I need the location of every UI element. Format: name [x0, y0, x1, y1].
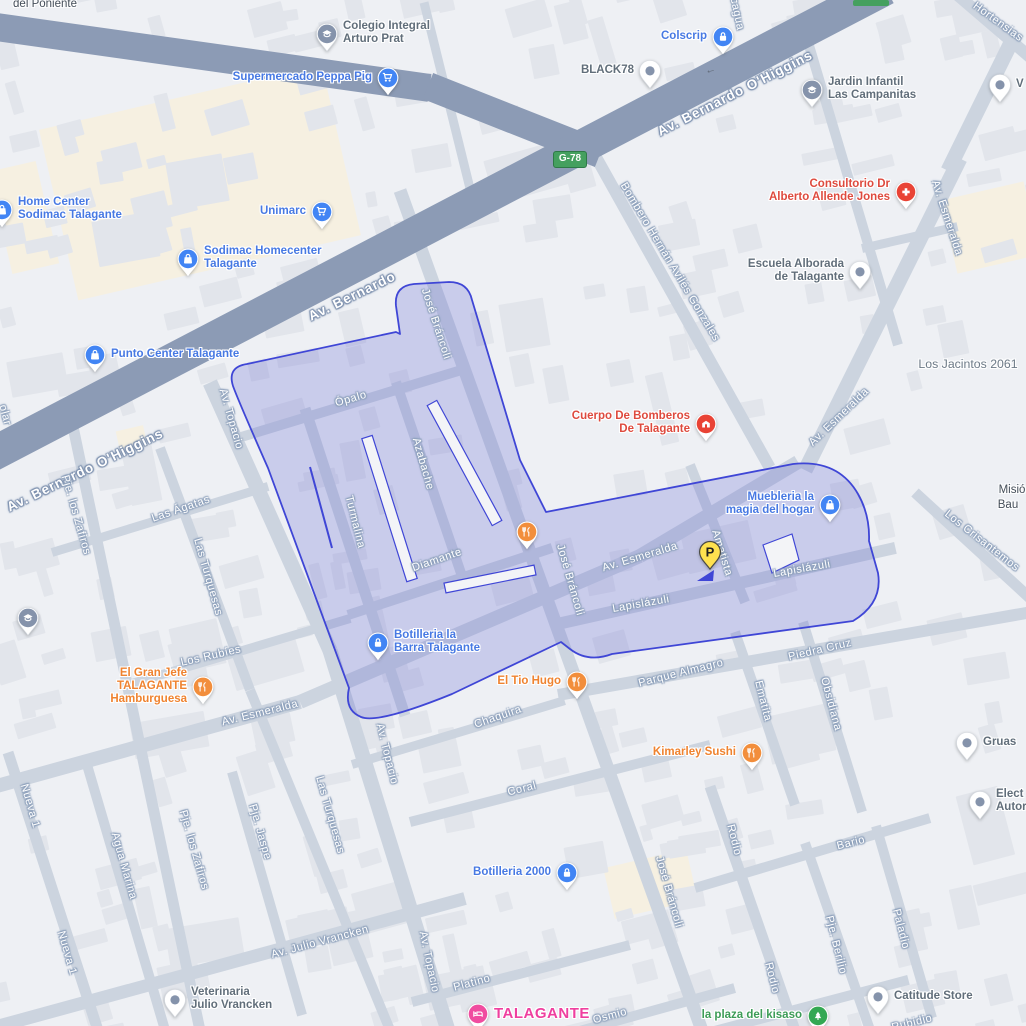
poi-label-line: Colscrip [661, 30, 707, 43]
poi-label-la-plaza-del-kisaso[interactable]: la plaza del kisaso [702, 1009, 802, 1022]
poi-pin-supermercado-peppa-pig[interactable] [376, 66, 400, 102]
poi-label-home-center-sodimac-talagante[interactable]: Home CenterSodimac Talagante [18, 196, 122, 222]
poi-label-line: Punto Center Talagante [111, 348, 239, 361]
poi-label-supermercado-peppa-pig[interactable]: Supermercado Peppa Pig [233, 71, 372, 84]
poi-pin-colscrip[interactable] [711, 25, 735, 61]
poi-label-line: Hamburguesa [110, 693, 187, 706]
poi-pin-jardin-infantil-las-campanitas[interactable] [800, 78, 824, 114]
poi-label-line: Talagante [204, 258, 322, 271]
poi-pin-punto-center-talagante[interactable] [83, 343, 107, 379]
dot-icon [170, 995, 179, 1004]
poi-label-line: BLACK78 [581, 64, 634, 77]
poi-label-line: Autor [996, 801, 1026, 814]
poi-pin-home-center-sodimac-talagante[interactable] [0, 198, 14, 234]
poi-pin-kimarley-sushi[interactable] [740, 741, 764, 777]
poi-label-line: Colegio Integral [343, 20, 430, 33]
poi-label-catitude-store[interactable]: Catitude Store [894, 990, 973, 1003]
poi-label-line: magia del hogar [726, 504, 814, 517]
poi-label-line: Julio Vrancken [191, 999, 272, 1012]
poi-label-jardin-infantil-las-campanitas[interactable]: Jardin InfantilLas Campanitas [828, 76, 916, 102]
poi-pin-cuerpo-de-bomberos-de-talagante[interactable] [694, 412, 718, 448]
poi-pin-muebleria-la-magia-del-hogar[interactable] [818, 493, 842, 529]
poi-label-line: Las Campanitas [828, 89, 916, 102]
poi-pin-electro-automotriz[interactable] [968, 790, 992, 826]
poi-label-line: Botilleria 2000 [473, 866, 551, 879]
poi-pin-restaurant-unlabeled[interactable] [515, 520, 539, 556]
poi-label-line: Escuela Alborada [748, 258, 844, 271]
poi-label-line: Muebleria la [726, 491, 814, 504]
poi-label-muebleria-la-magia-del-hogar[interactable]: Muebleria lamagia del hogar [726, 491, 814, 517]
poi-label-line: Gruas [983, 736, 1016, 749]
poi-pin-colegio-integral-arturo-prat[interactable] [315, 22, 339, 58]
poi-label-consultorio-dr-alberto-allende-jones[interactable]: Consultorio DrAlberto Allende Jones [769, 178, 890, 204]
poi-label-line: El Tio Hugo [497, 675, 561, 688]
poi-label-gruas[interactable]: Gruas [983, 736, 1016, 749]
street-label: Misió [999, 484, 1026, 496]
poi-label-line: Supermercado Peppa Pig [233, 71, 372, 84]
poi-label-botilleria-2000[interactable]: Botilleria 2000 [473, 866, 551, 879]
poi-label-line: El Gran Jefe [110, 667, 187, 680]
poi-label-line: V [1016, 78, 1024, 91]
poi-pin-parking-marker[interactable]: P [698, 540, 722, 576]
poi-pin-consultorio-dr-alberto-allende-jones[interactable] [894, 180, 918, 216]
poi-pin-sodimac-homecenter-talagante[interactable] [176, 247, 200, 283]
poi-pin-school-unlabeled[interactable] [16, 606, 40, 642]
dot-icon [995, 80, 1004, 89]
poi-label-line: la plaza del kisaso [702, 1009, 802, 1022]
poi-label-kimarley-sushi[interactable]: Kimarley Sushi [653, 746, 736, 759]
poi-label-line: Alberto Allende Jones [769, 191, 890, 204]
poi-label-sodimac-homecenter-talagante[interactable]: Sodimac HomecenterTalagante [204, 245, 322, 271]
poi-label-line: Consultorio Dr [769, 178, 890, 191]
poi-label-el-gran-jefe-talagante[interactable]: El Gran JefeTALAGANTEHamburguesa [110, 667, 187, 706]
poi-label-line: Veterinaria [191, 986, 272, 999]
poi-label-colegio-integral-arturo-prat[interactable]: Colegio IntegralArturo Prat [343, 20, 430, 46]
poi-pin-el-tio-hugo[interactable] [565, 670, 589, 706]
poi-label-cuerpo-de-bomberos-de-talagante[interactable]: Cuerpo De BomberosDe Talagante [572, 410, 690, 436]
poi-pin-botilleria-la-barra-talagante[interactable] [366, 631, 390, 667]
poi-label-talagante-hotel[interactable]: TALAGANTE [494, 1005, 590, 1022]
poi-label-line: Barra Talagante [394, 642, 480, 655]
poi-label-escuela-alborada-de-talagante[interactable]: Escuela Alboradade Talagante [748, 258, 844, 284]
dot-icon [855, 267, 864, 276]
poi-pin-el-gran-jefe-talagante[interactable] [191, 675, 215, 711]
poi-label-line: TALAGANTE [110, 680, 187, 693]
poi-label-line: Jardin Infantil [828, 76, 916, 89]
poi-pin-black78[interactable] [638, 59, 662, 95]
poi-label-line: Kimarley Sushi [653, 746, 736, 759]
poi-label-line: Unimarc [260, 205, 306, 218]
poi-label-line: Catitude Store [894, 990, 973, 1003]
poi-label-line: De Talagante [572, 423, 690, 436]
poi-label-v-store[interactable]: V [1016, 78, 1024, 91]
poi-label-line: Home Center [18, 196, 122, 209]
poi-label-line: Arturo Prat [343, 33, 430, 46]
poi-pin-escuela-alborada-de-talagante[interactable] [848, 260, 872, 296]
poi-pin-talagante-hotel[interactable] [466, 1002, 490, 1026]
poi-label-botilleria-la-barra-talagante[interactable]: Botilleria laBarra Talagante [394, 629, 480, 655]
poi-pin-gruas[interactable] [955, 731, 979, 767]
street-label: del Poniente [13, 0, 77, 10]
poi-label-unimarc[interactable]: Unimarc [260, 205, 306, 218]
poi-label-line: Sodimac Homecenter [204, 245, 322, 258]
poi-pin-v-store[interactable] [988, 73, 1012, 109]
street-label: Los Jacintos 2061 [918, 357, 1017, 371]
poi-pin-botilleria-2000[interactable] [555, 861, 579, 897]
poi-label-line: Botilleria la [394, 629, 480, 642]
poi-label-veterinaria-julio-vrancken[interactable]: VeterinariaJulio Vrancken [191, 986, 272, 1012]
poi-pin-catitude-store[interactable] [866, 985, 890, 1021]
poi-label-line: Elect [996, 788, 1026, 801]
street-label: Bau [998, 499, 1018, 511]
poi-label-colscrip[interactable]: Colscrip [661, 30, 707, 43]
poi-label-punto-center-talagante[interactable]: Punto Center Talagante [111, 348, 239, 361]
dot-icon [873, 992, 882, 1001]
poi-pin-unimarc[interactable] [310, 200, 334, 236]
poi-label-line: de Talagante [748, 271, 844, 284]
poi-label-line: TALAGANTE [494, 1005, 590, 1022]
poi-label-black78[interactable]: BLACK78 [581, 64, 634, 77]
poi-pin-veterinaria-julio-vrancken[interactable] [163, 988, 187, 1024]
poi-pin-la-plaza-del-kisaso[interactable] [806, 1004, 830, 1026]
poi-label-line: Cuerpo De Bomberos [572, 410, 690, 423]
poi-label-el-tio-hugo[interactable]: El Tio Hugo [497, 675, 561, 688]
dot-icon [645, 66, 654, 75]
map-canvas[interactable]: G-78←Av. Bernardo O'HigginsAv. BernardoA… [0, 0, 1026, 1026]
poi-label-line: Sodimac Talagante [18, 209, 122, 222]
poi-label-electro-automotriz[interactable]: ElectAutor [996, 788, 1026, 814]
svg-text:P: P [706, 545, 715, 560]
dot-icon [975, 797, 984, 806]
dot-icon [962, 738, 971, 747]
